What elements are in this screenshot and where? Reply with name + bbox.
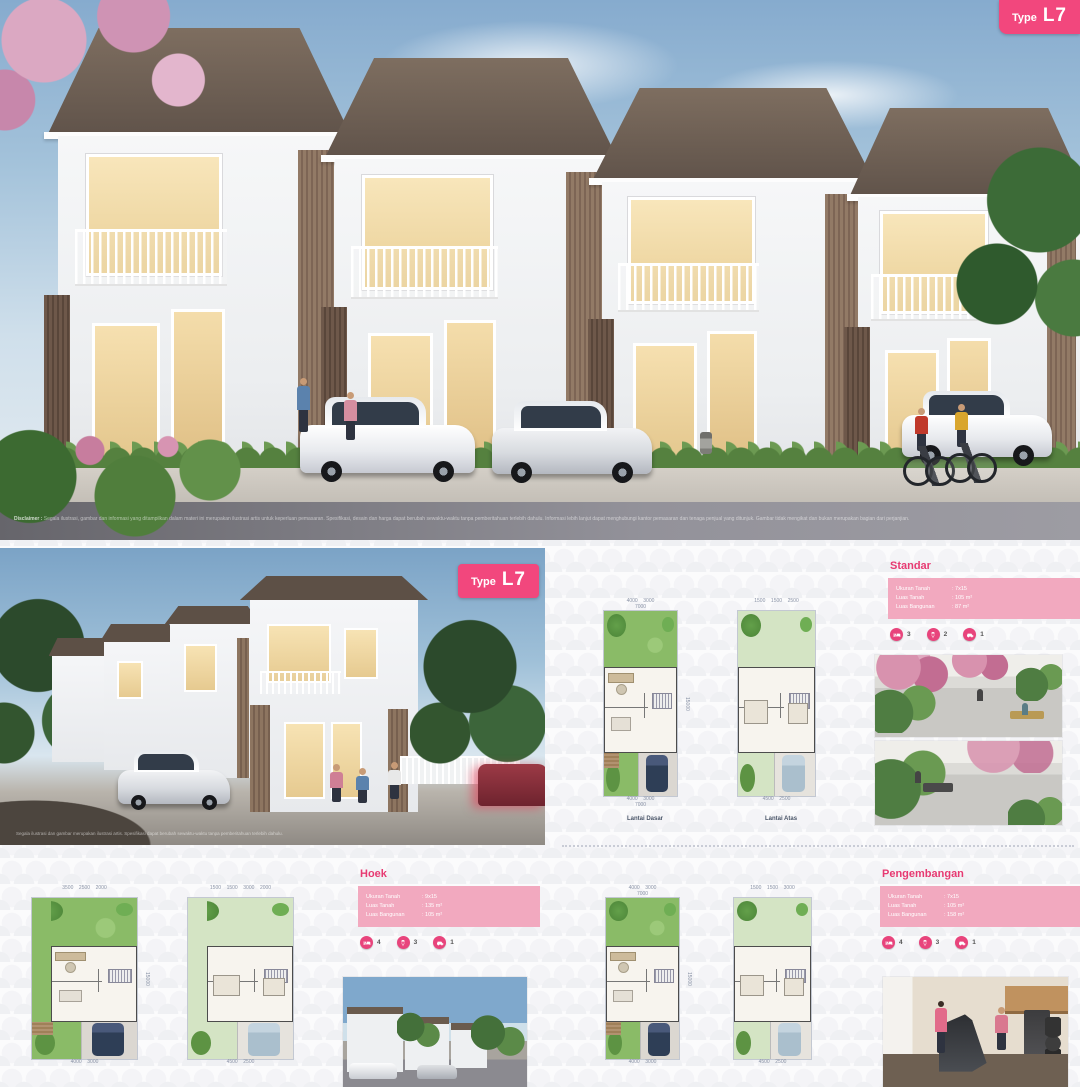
- street-trees: [397, 1011, 441, 1051]
- floorplan-standar-upper: 1500 1500 2500 4500 2500 Lantai Atas: [734, 598, 828, 822]
- spec-label: Luas Tanah: [366, 902, 422, 911]
- feature-row: 4 3 1: [360, 936, 540, 949]
- dimension-labels: 3500 2500 2000: [32, 885, 137, 891]
- interior-wall: [607, 981, 650, 982]
- floorplan-drawing: [734, 898, 811, 1059]
- disclaimer-body: Segala ilustrasi dan gambar merupakan il…: [16, 831, 283, 836]
- tree-symbol: [609, 901, 628, 921]
- stairs-symbol: [654, 969, 674, 983]
- person-woman: [344, 392, 357, 442]
- spec-label: Luas Tanah: [888, 902, 944, 911]
- garden-bench: [923, 783, 953, 792]
- gym-photo: [883, 977, 1068, 1087]
- car-symbol: [646, 755, 668, 792]
- section-title: Pengembangan: [882, 868, 1080, 880]
- person: [388, 762, 401, 798]
- feature-count: 1: [972, 939, 976, 946]
- house-unit: [52, 654, 108, 762]
- floorplan-house: [51, 946, 137, 1022]
- person: [356, 768, 369, 802]
- bush-symbol: [664, 903, 676, 916]
- car-symbol: [648, 1023, 670, 1055]
- spec-row: Luas Bangunan : 105 m²: [366, 911, 532, 920]
- floorplan-garden: [188, 1020, 238, 1059]
- white-sedan-car: [300, 425, 475, 473]
- balcony-railing: [618, 263, 759, 313]
- interior-wall: [254, 969, 255, 991]
- person: [330, 764, 343, 802]
- stairs-symbol: [108, 969, 132, 983]
- garden-bushes: [875, 683, 939, 733]
- garden-bushes: [1016, 661, 1062, 701]
- garden-photo-1: [875, 655, 1062, 737]
- wood-slat-panel: [237, 638, 249, 778]
- floorplan-house: [207, 946, 293, 1022]
- spec-value: : 135 m²: [422, 902, 442, 911]
- brochure-page: { "watermark": "N", "hero": { "badge": {…: [0, 0, 1080, 1080]
- car-symbol: [248, 1023, 280, 1055]
- bed-icon: [360, 936, 373, 949]
- floorplan-garden: [734, 898, 811, 948]
- dimension-labels: 4500 2500: [188, 1059, 293, 1065]
- type-badge: Type L7: [999, 0, 1080, 34]
- floorplan-carport: [774, 752, 815, 796]
- bush-symbol: [662, 617, 674, 632]
- car-wheel: [202, 795, 217, 810]
- type-badge: Type L7: [458, 564, 539, 598]
- house-unit: [602, 88, 864, 480]
- red-car: [478, 764, 545, 806]
- person: [977, 689, 983, 701]
- floorplan-garden: [734, 1020, 771, 1059]
- person-torso: [935, 1008, 947, 1032]
- dotted-separator: [562, 845, 1074, 847]
- section-title: Standar: [890, 560, 1080, 572]
- bed-icon: [882, 936, 895, 949]
- spec-label: Luas Bangunan: [896, 603, 952, 612]
- person-torso: [330, 772, 343, 788]
- dimension-labels: 4000 3000: [32, 1059, 137, 1065]
- bed-symbol: [784, 978, 804, 996]
- feature-bathrooms: 3: [919, 936, 940, 949]
- feature-count: 4: [899, 939, 903, 946]
- tree-symbol: [741, 614, 761, 637]
- spec-label: Ukuran Tanah: [366, 893, 422, 902]
- pengembangan-panel: Pengembangan Ukuran Tanah : 7x15 Luas Ta…: [880, 868, 1080, 949]
- kitchen-counter: [55, 952, 86, 961]
- child-cyclist: [955, 404, 968, 448]
- spec-row: Ukuran Tanah : 7x15: [888, 893, 1072, 902]
- spec-row: Ukuran Tanah : 7x15: [896, 585, 1072, 594]
- person-man: [297, 378, 310, 436]
- floorplan-hoek-ground: 3500 2500 2000 4000 3000 15000: [28, 885, 150, 1085]
- floorplan-carport: [81, 1020, 137, 1059]
- bush-symbol: [272, 903, 289, 916]
- floorplan-house: [604, 667, 677, 754]
- house-roof: [324, 58, 618, 159]
- feature-row: 3 2 1: [890, 628, 1080, 641]
- floorplan-drawing: [604, 611, 677, 796]
- bed-symbol: [744, 700, 769, 724]
- disclaimer-text: Segala ilustrasi dan gambar merupakan il…: [16, 831, 436, 837]
- type-badge-code: L7: [502, 569, 526, 591]
- dimension-total: 7000: [604, 604, 677, 610]
- floorplan-carport: [237, 1020, 293, 1059]
- shower-icon: [919, 936, 932, 949]
- balcony-railing: [351, 246, 498, 299]
- green-tree: [946, 130, 1080, 410]
- sofa-symbol: [613, 990, 633, 1002]
- floorplan-drawing: [32, 898, 137, 1059]
- floorplan-house: [734, 946, 811, 1022]
- spec-row: Luas Tanah : 105 m²: [896, 594, 1072, 603]
- feature-count: 3: [936, 939, 940, 946]
- spec-label: Luas Tanah: [896, 594, 952, 603]
- sofa-symbol: [611, 717, 631, 731]
- person: [1022, 703, 1028, 715]
- person-torso: [915, 416, 928, 434]
- shower-icon: [927, 628, 940, 641]
- car-icon: [433, 936, 446, 949]
- upper-window: [117, 661, 143, 699]
- feature-carport: 1: [433, 936, 454, 949]
- hero-photo: N: [0, 0, 1080, 540]
- floorplan-label: Lantai Dasar: [600, 816, 690, 822]
- section-title: Hoek: [360, 868, 540, 880]
- type-badge-prefix: Type: [1012, 12, 1037, 24]
- floorplan-pengembangan-ground: 4000 3000 7000 4000 3000 15000: [602, 885, 692, 1085]
- car-wheel: [433, 461, 454, 482]
- spec-value: : 7x15: [944, 893, 959, 902]
- interior-wall: [776, 969, 777, 991]
- floorplan-carport: [770, 1020, 811, 1059]
- spec-box: Ukuran Tanah : 7x15 Luas Tanah : 105 m² …: [888, 578, 1080, 619]
- feature-count: 2: [944, 631, 948, 638]
- floorplan-garden: [604, 611, 677, 668]
- person-torso: [297, 386, 310, 410]
- street-trees: [471, 1015, 527, 1059]
- feature-bathrooms: 2: [927, 628, 948, 641]
- stairs-symbol: [652, 693, 672, 709]
- feature-bedrooms: 4: [360, 936, 381, 949]
- bush-symbol: [116, 903, 133, 916]
- type-badge-code: L7: [1043, 5, 1067, 27]
- interior-wall: [780, 693, 781, 719]
- interior-wall: [98, 969, 99, 991]
- floorplan-hoek-upper: 1500 1500 3000 2000 4500 2500: [184, 885, 306, 1085]
- floorplan-standar-ground: 4000 3000 7000 4000 3000 7000 15000 Lant…: [600, 598, 690, 822]
- floorplan-carport: [638, 752, 677, 796]
- upper-window: [344, 628, 378, 679]
- feature-row: 4 3 1: [882, 936, 1080, 949]
- feature-count: 4: [377, 939, 381, 946]
- house-roof: [100, 624, 181, 642]
- pink-blossom-tree: [945, 655, 1015, 683]
- dimension-side: 15000: [139, 898, 150, 1059]
- floorplan-house: [606, 946, 679, 1022]
- feature-carport: 1: [955, 936, 976, 949]
- car-symbol: [778, 1023, 801, 1055]
- feature-bedrooms: 4: [882, 936, 903, 949]
- garden-bushes: [875, 741, 947, 821]
- lower-window: [284, 722, 325, 799]
- spec-label: Ukuran Tanah: [896, 585, 952, 594]
- dimension-labels: 1500 1500 3000 2000: [188, 885, 293, 891]
- silver-sedan-car: [492, 428, 652, 474]
- floorplan-deck: [606, 1022, 621, 1035]
- street-photo: [343, 977, 527, 1087]
- dimension-side: [817, 611, 828, 796]
- interior-wall: [646, 969, 647, 991]
- balcony-railing: [75, 229, 227, 286]
- pink-blossom-tree: [955, 741, 1062, 773]
- garden-photo-2: [875, 741, 1062, 825]
- dimension-side: [295, 898, 306, 1059]
- bed-symbol: [213, 975, 240, 996]
- feature-count: 1: [980, 631, 984, 638]
- car-symbol: [92, 1023, 124, 1055]
- person-torso: [955, 412, 968, 430]
- disclaimer-label: Disclaimer :: [14, 516, 42, 522]
- corner-house-photo: Type L7 Segala ilustrasi dan gambar meru…: [0, 548, 545, 845]
- dimension-side: 15000: [679, 611, 690, 796]
- upper-window: [184, 644, 217, 692]
- bush-symbol: [736, 1031, 751, 1055]
- floorplan-garden: [738, 752, 775, 796]
- disclaimer-text: Disclaimer : Segala ilustrasi, gambar da…: [14, 516, 1054, 522]
- disclaimer-body: Segala ilustrasi, gambar dan informasi y…: [44, 516, 910, 522]
- person-torso: [344, 400, 357, 421]
- car-icon: [955, 936, 968, 949]
- bed-symbol: [740, 975, 765, 996]
- dimension-labels: 4500 2500: [734, 1059, 811, 1065]
- spec-row: Luas Bangunan : 158 m²: [888, 911, 1072, 920]
- dimension-side: 15000: [681, 898, 692, 1059]
- person-on-treadmill: [935, 1001, 947, 1057]
- feature-count: 3: [414, 939, 418, 946]
- bush-symbol: [740, 764, 755, 792]
- interior-wall: [52, 981, 102, 982]
- spec-row: Luas Tanah : 105 m²: [888, 902, 1072, 911]
- car-icon: [963, 628, 976, 641]
- spec-value: : 105 m²: [944, 902, 964, 911]
- shower-icon: [397, 936, 410, 949]
- bush-symbol: [800, 617, 812, 632]
- pink-blossom-tree: [0, 0, 240, 156]
- dimension-total: 7000: [604, 802, 677, 808]
- tree-symbol: [737, 901, 757, 921]
- kitchen-counter: [608, 673, 634, 683]
- balcony-railing: [260, 671, 341, 694]
- floorplan-garden: [738, 611, 815, 668]
- hoek-panel: Hoek Ukuran Tanah : 9x15 Luas Tanah : 13…: [358, 868, 540, 949]
- spec-value: : 105 m²: [952, 594, 972, 603]
- floorplan-carport: [640, 1020, 679, 1059]
- type-badge-prefix: Type: [471, 576, 496, 588]
- house-roof: [592, 88, 875, 182]
- feature-bathrooms: 3: [397, 936, 418, 949]
- floorplan-pengembangan-upper: 1500 1500 3000 4500 2500: [730, 885, 824, 1085]
- bed-icon: [890, 628, 903, 641]
- car-wheel: [321, 461, 342, 482]
- spec-value: : 7x15: [952, 585, 967, 594]
- spec-row: Ukuran Tanah : 9x15: [366, 893, 532, 902]
- floorplan-deck: [604, 753, 619, 768]
- car-wheel: [612, 462, 633, 483]
- floorplan-house: [738, 667, 815, 754]
- bicycle: [945, 443, 997, 483]
- standar-panel: Standar Ukuran Tanah : 7x15 Luas Tanah :…: [888, 560, 1080, 641]
- car-wheel: [1013, 445, 1034, 466]
- spec-row: Luas Tanah : 135 m²: [366, 902, 532, 911]
- tree-symbol: [607, 614, 626, 637]
- floorplan-drawing: [606, 898, 679, 1059]
- wood-slat-panel: [250, 705, 270, 812]
- dimension-labels: 4500 2500: [738, 796, 815, 802]
- green-tree: [410, 600, 545, 790]
- spec-value: : 105 m²: [422, 911, 442, 920]
- spec-label: Luas Bangunan: [888, 911, 944, 920]
- person-torso: [388, 770, 401, 785]
- dimension-total: 7000: [606, 891, 679, 897]
- white-car: [118, 770, 230, 804]
- dimension-labels: 4000 3000: [606, 1059, 679, 1065]
- interior-wall: [605, 707, 648, 708]
- spec-row: Luas Bangunan : 87 m²: [896, 603, 1072, 612]
- spec-value: : 9x15: [422, 893, 437, 902]
- dining-table: [65, 962, 76, 973]
- feature-count: 1: [450, 939, 454, 946]
- sofa-symbol: [59, 990, 83, 1002]
- garden-lantern: [700, 432, 712, 454]
- house-roof: [240, 576, 428, 600]
- spec-label: Luas Bangunan: [366, 911, 422, 920]
- garden-bushes: [1008, 797, 1062, 825]
- feature-carport: 1: [963, 628, 984, 641]
- person: [995, 1007, 1008, 1051]
- dimension-side: [813, 898, 824, 1059]
- bush-symbol: [796, 903, 808, 916]
- floorplan-label: Lantai Atas: [734, 816, 828, 822]
- floorplan-drawing: [188, 898, 293, 1059]
- white-car: [349, 1063, 397, 1079]
- kitchen-counter: [610, 952, 636, 961]
- dimension-labels: 1500 1500 3000: [734, 885, 811, 891]
- spec-label: Ukuran Tanah: [888, 893, 944, 902]
- person-torso: [356, 776, 369, 790]
- dining-table: [616, 684, 627, 695]
- house-roof: [165, 606, 261, 624]
- spec-box: Ukuran Tanah : 7x15 Luas Tanah : 105 m² …: [880, 886, 1080, 927]
- dimension-labels: 1500 1500 2500: [738, 598, 815, 604]
- bush-symbol: [191, 1031, 211, 1055]
- gray-car: [417, 1065, 457, 1079]
- dining-table: [618, 962, 629, 973]
- spec-box: Ukuran Tanah : 9x15 Luas Tanah : 135 m² …: [358, 886, 540, 927]
- floorplan-deck: [32, 1022, 53, 1035]
- person: [915, 771, 921, 783]
- floorplan-drawing: [738, 611, 815, 796]
- floorplan-garden: [606, 898, 679, 948]
- person-torso: [995, 1015, 1008, 1033]
- bed-symbol: [788, 703, 808, 724]
- feature-count: 3: [907, 631, 911, 638]
- spec-value: : 87 m²: [952, 603, 969, 612]
- car-symbol: [782, 755, 805, 792]
- bed-symbol: [263, 978, 285, 996]
- spec-value: : 158 m²: [944, 911, 964, 920]
- feature-bedrooms: 3: [890, 628, 911, 641]
- interior-wall: [644, 693, 645, 719]
